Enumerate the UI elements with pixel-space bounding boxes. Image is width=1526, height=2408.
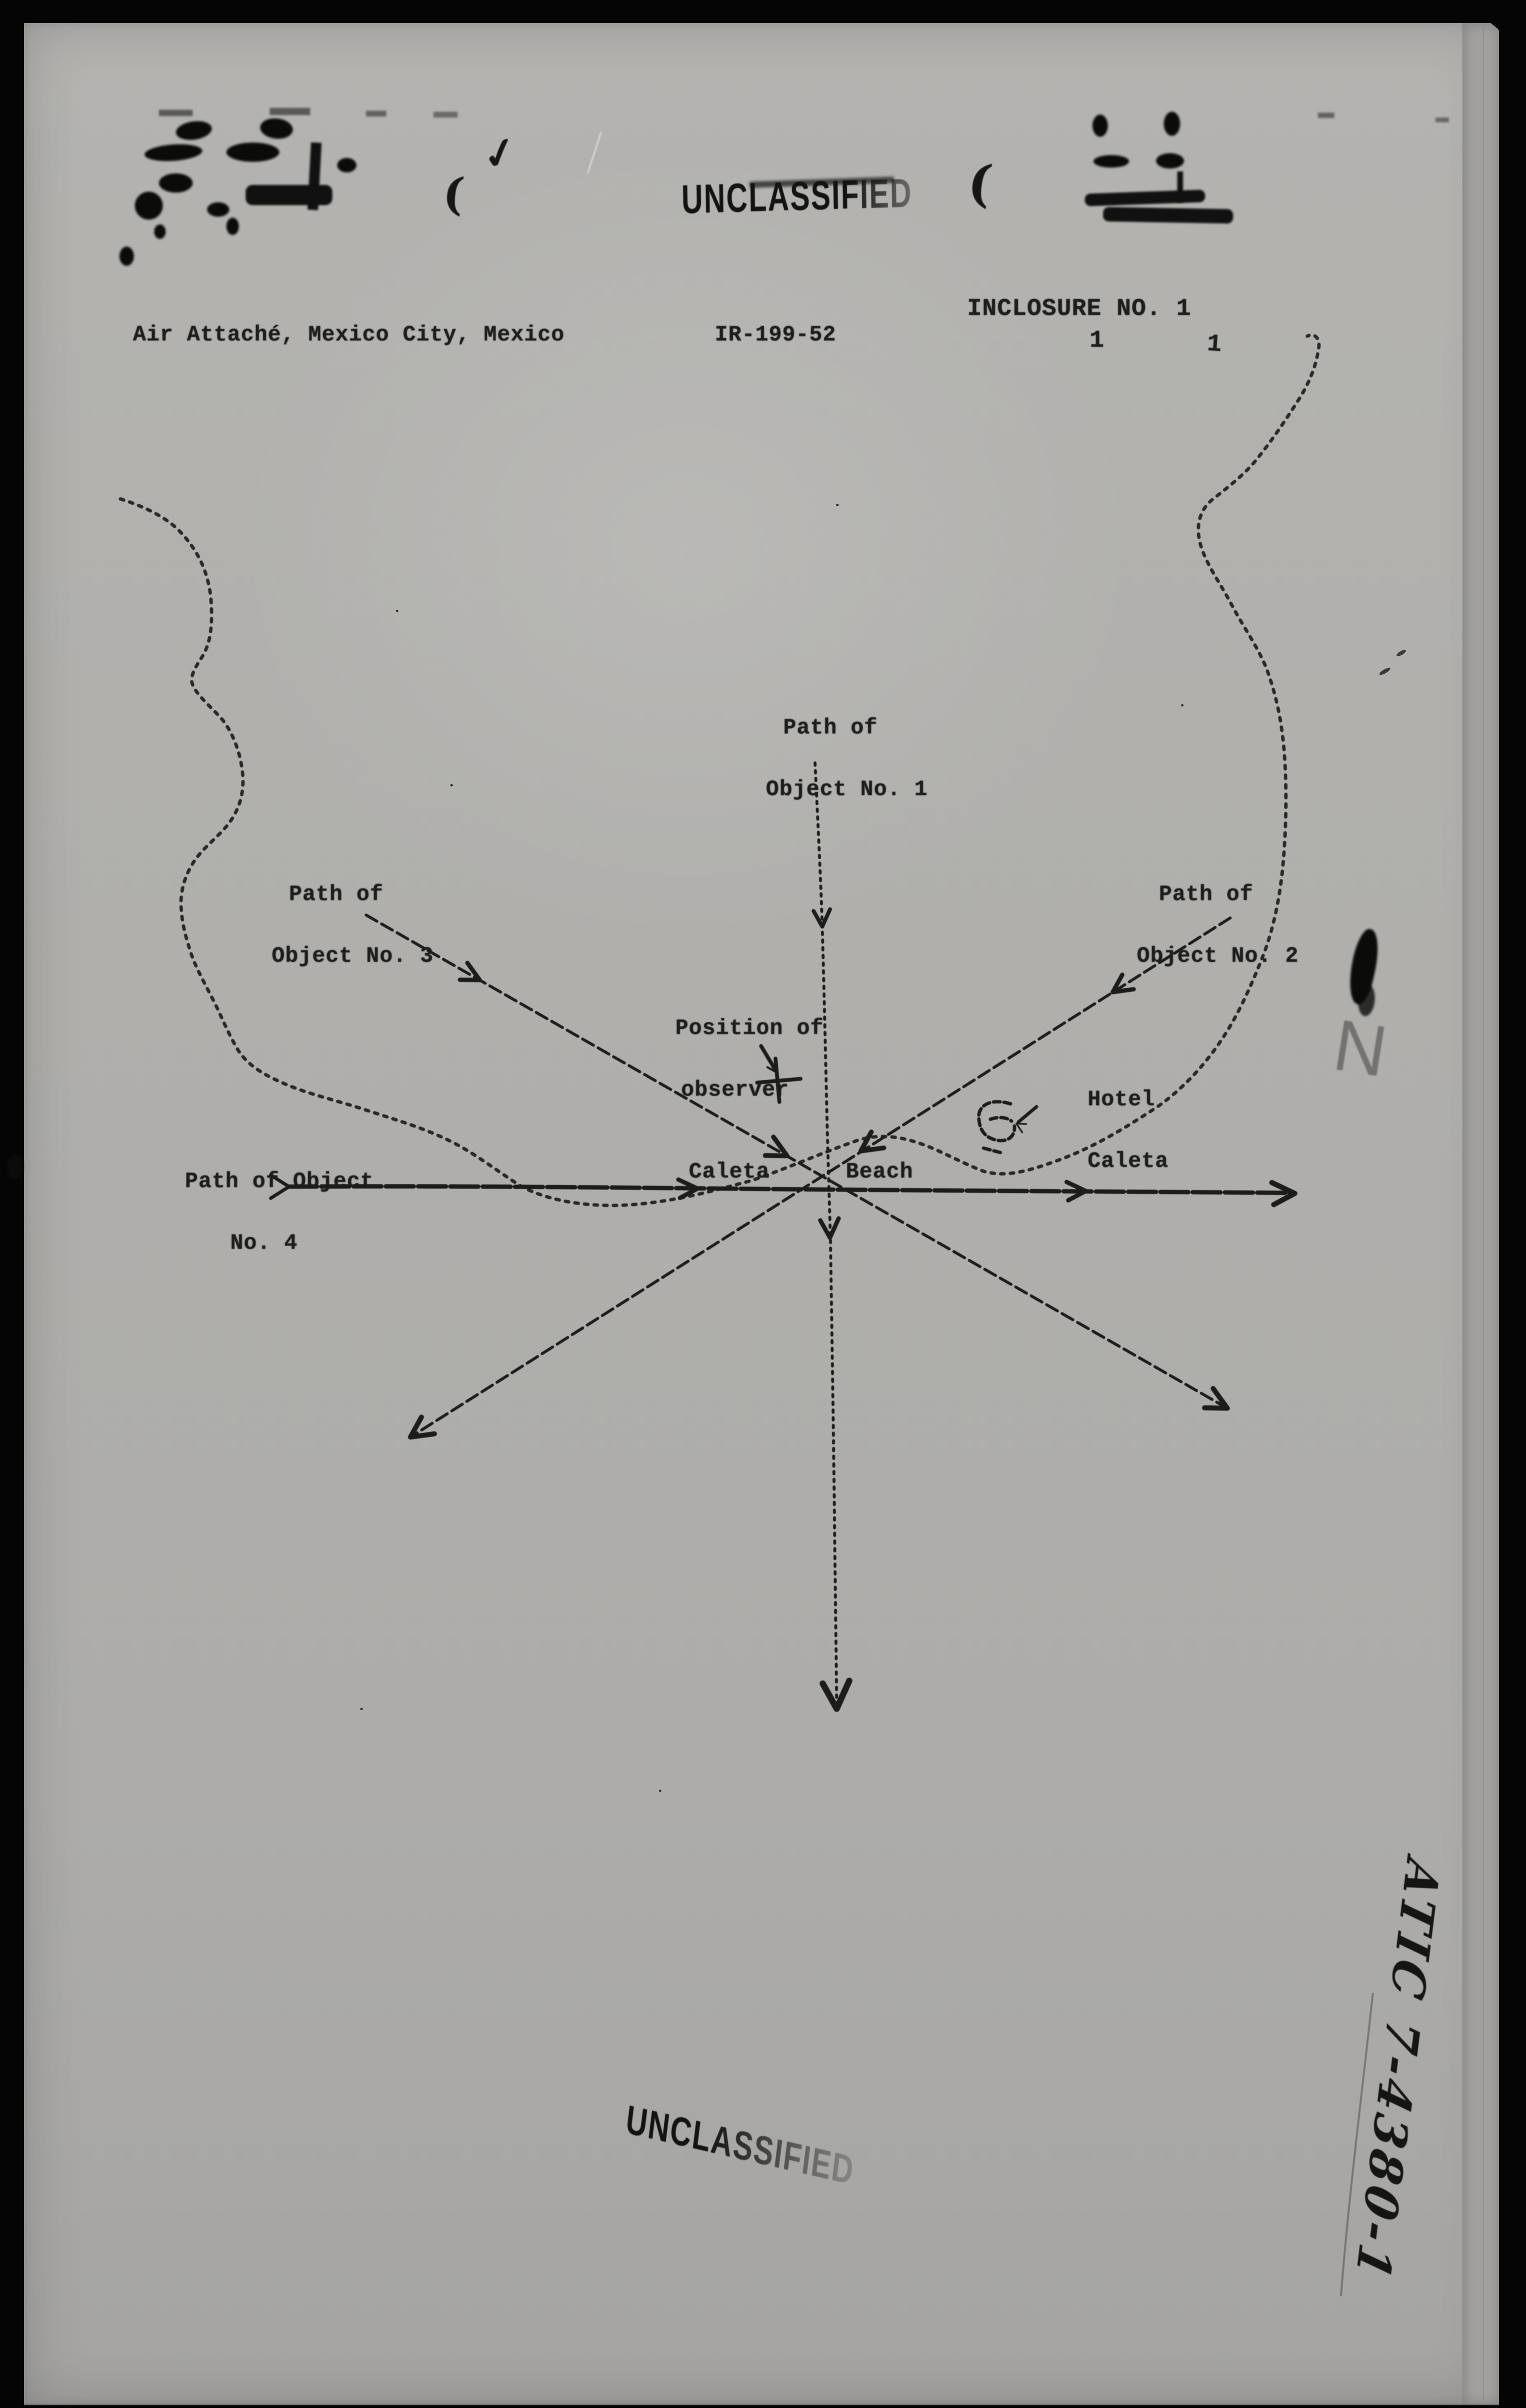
scanned-document: ✓ ( ( UNCLASSIFIED UNCLASSIFIED Air Atta… [0, 0, 1526, 2408]
label-object2: Path of Object No. 2 [1083, 849, 1276, 1002]
label-hotel: Hotel Caleta [1034, 1054, 1169, 1207]
label-observer-line2: observer [681, 1078, 789, 1102]
label-object4: Path of Object No. 4 [131, 1136, 343, 1289]
label-object2-line1: Path of [1159, 882, 1253, 907]
label-observer: Position of observer [621, 982, 795, 1136]
label-object1: Path of Object No. 1 [712, 682, 895, 836]
label-observer-line1: Position of [675, 1016, 824, 1041]
label-object3: Path of Object No. 3 [218, 849, 401, 1002]
hotel-symbol [979, 1102, 1014, 1153]
label-object4-line1: Path of Object [185, 1169, 374, 1194]
arrowheads [405, 909, 1295, 1709]
label-beach-left: Caleta [689, 1157, 770, 1188]
label-object3-line1: Path of [289, 882, 383, 907]
label-object3-line2: Object No. 3 [272, 944, 434, 968]
label-object1-line1: Path of [783, 716, 878, 740]
label-beach-right: Beach [846, 1157, 913, 1188]
label-object2-line2: Object No. 2 [1137, 944, 1299, 968]
label-object1-line2: Object No. 1 [766, 777, 928, 802]
label-object4-line2: No. 4 [230, 1231, 298, 1256]
hotel-pointer [1014, 1107, 1037, 1132]
label-hotel-line1: Hotel [1088, 1087, 1155, 1112]
label-hotel-line2: Caleta [1088, 1149, 1169, 1174]
